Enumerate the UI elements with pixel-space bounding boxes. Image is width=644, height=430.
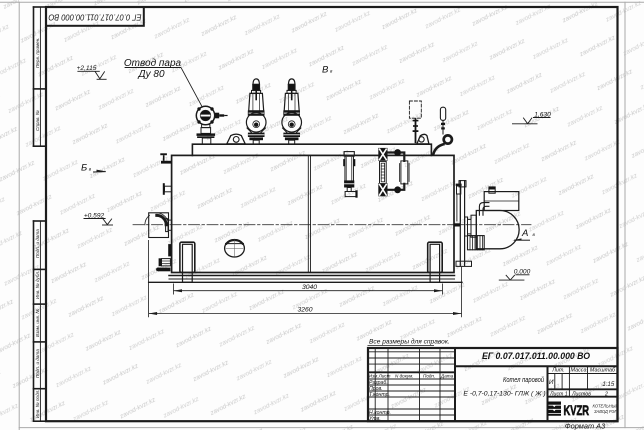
svg-text:А: А [521,228,528,239]
svg-text:Лист 1: Лист 1 [549,391,568,397]
svg-text:1,630: 1,630 [534,111,551,118]
svg-text:Масштаб: Масштаб [590,368,616,374]
svg-text:Б: Б [81,162,87,173]
svg-text:KVZR: KVZR [564,403,590,419]
svg-text:Е -0,7-0,17-130- ГЛЖ ( Ж ): Е -0,7-0,17-130- ГЛЖ ( Ж ) [463,391,545,398]
svg-text:1:15: 1:15 [602,381,615,388]
svg-text:Справ. №: Справ. № [35,110,40,131]
svg-text:Формат А3: Формат А3 [565,422,606,430]
svg-text:И: И [549,379,554,386]
svg-text:2: 2 [604,391,608,397]
svg-text:3260: 3260 [297,307,312,314]
svg-text:Утв.: Утв. [369,416,381,422]
svg-text:Подп. и дата: Подп. и дата [35,349,40,378]
svg-text:Лит.: Лит. [551,368,565,374]
svg-text:0,000: 0,000 [514,269,531,276]
svg-text:Изм.Лист: Изм.Лист [369,374,391,379]
svg-text:Взам. инв. №: Взам. инв. № [35,309,40,337]
svg-text:+0,592: +0,592 [84,212,105,219]
svg-text:Масса: Масса [571,368,587,374]
svg-text:Перв. примен.: Перв. примен. [35,37,40,68]
svg-text:В: В [322,65,329,76]
svg-text:Т.контр.: Т.контр. [369,392,390,398]
svg-text:N докум.: N докум. [395,374,414,379]
svg-text:Инв. № подл.: Инв. № подл. [35,389,40,418]
svg-text:Котел паровой: Котел паровой [503,375,545,384]
svg-text:Подп.: Подп. [423,374,435,379]
svg-text:3040: 3040 [302,284,317,291]
svg-text:ЗАВОД РЭП: ЗАВОД РЭП [594,409,618,414]
svg-text:Все размеры для справок.: Все размеры для справок. [369,338,450,346]
svg-text:Инв. № дубл.: Инв. № дубл. [35,271,40,299]
svg-text:Листов: Листов [571,391,591,397]
svg-text:Отвод пара: Отвод пара [124,58,182,69]
svg-text:ЕГ 0.07.017.011.00.000 ВО: ЕГ 0.07.017.011.00.000 ВО [48,12,142,21]
svg-text:Ду 80: Ду 80 [137,69,164,80]
svg-text:+2,115: +2,115 [77,65,97,72]
svg-text:Подп. и дата: Подп. и дата [35,229,40,258]
svg-text:Дата: Дата [440,374,454,379]
svg-text:ЕГ 0.07.017.011.00.000 ВО: ЕГ 0.07.017.011.00.000 ВО [482,350,591,361]
svg-text:КОТЕЛЬНЫЙ: КОТЕЛЬНЫЙ [593,404,619,409]
